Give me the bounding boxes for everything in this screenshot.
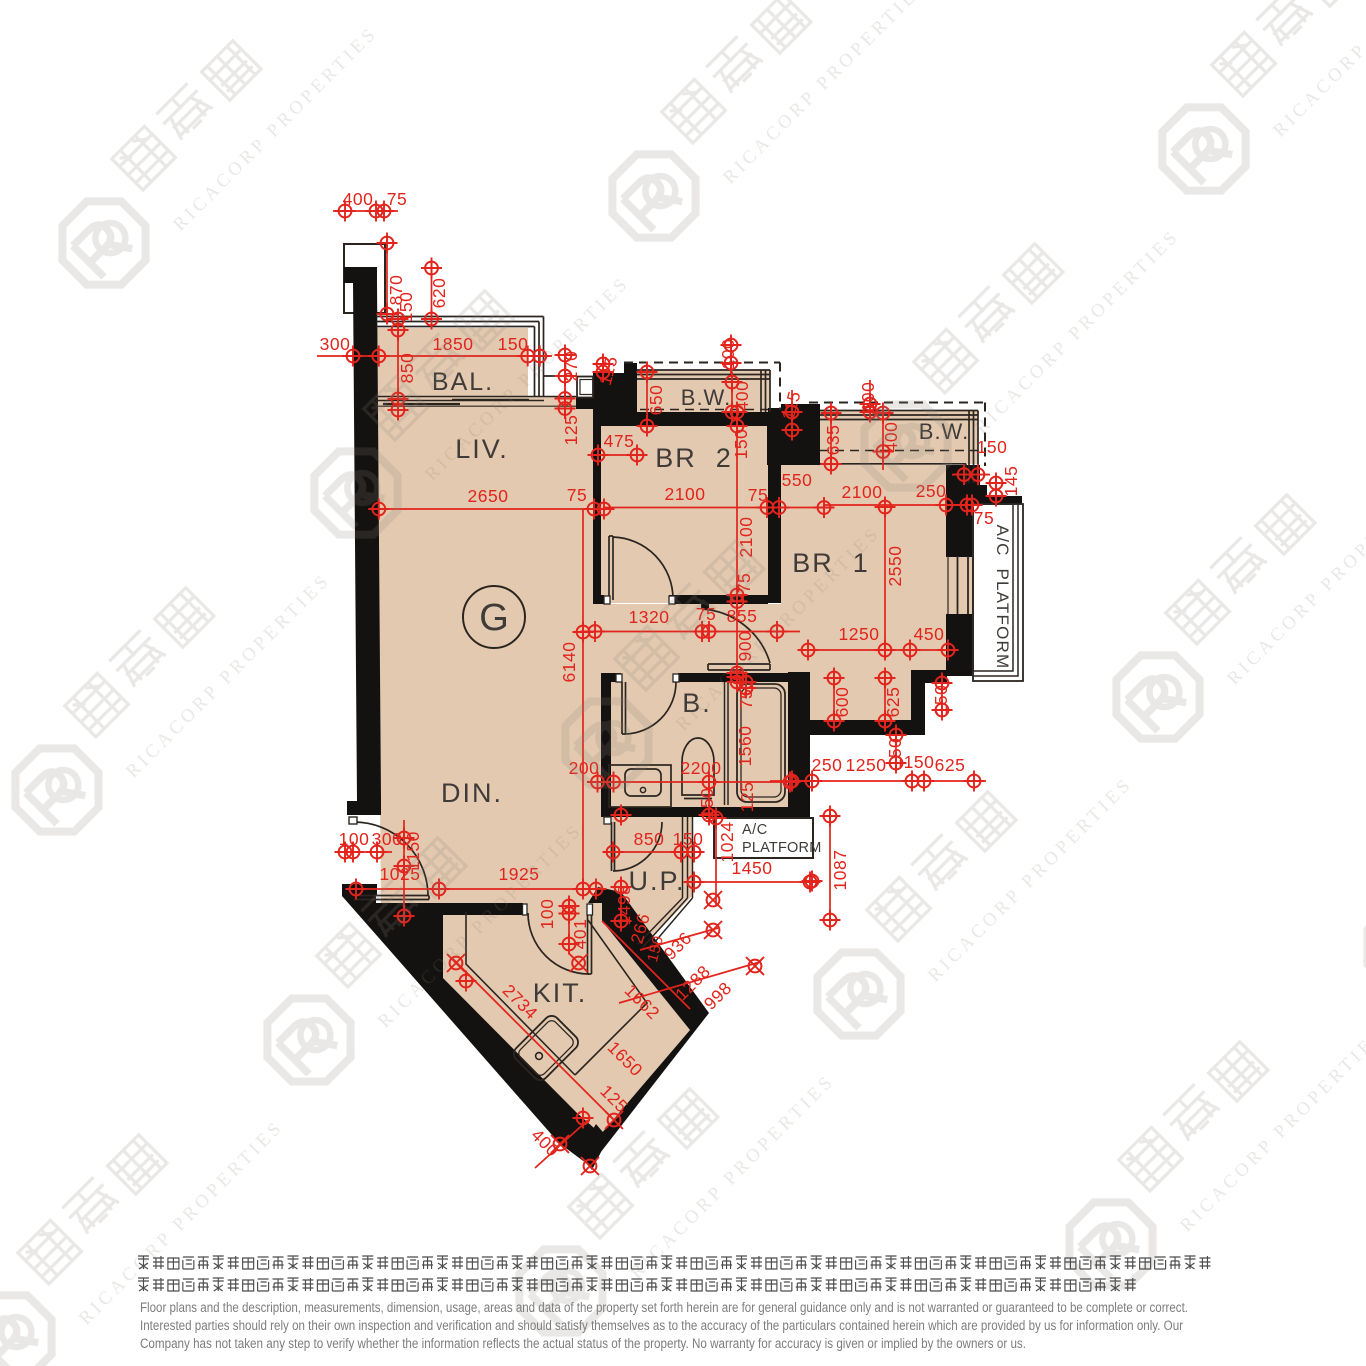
- svg-text:1250: 1250: [846, 755, 887, 775]
- svg-text:2100: 2100: [842, 482, 883, 502]
- svg-text:450: 450: [914, 624, 945, 644]
- svg-text:400: 400: [343, 189, 374, 209]
- svg-text:1450: 1450: [732, 858, 773, 878]
- svg-text:1087: 1087: [830, 850, 850, 891]
- svg-text:150: 150: [885, 738, 905, 769]
- svg-text:BR 2: BR 2: [655, 443, 733, 473]
- svg-text:2650: 2650: [468, 486, 509, 506]
- svg-text:250: 250: [812, 755, 843, 775]
- svg-text:Company has not taken any step: Company has not taken any step to verify…: [140, 1336, 1026, 1351]
- svg-text:6140: 6140: [559, 642, 579, 683]
- svg-text:2550: 2550: [885, 546, 905, 587]
- svg-text:A/C PLATFORM: A/C PLATFORM: [993, 525, 1012, 670]
- svg-text:150: 150: [673, 829, 704, 849]
- svg-text:100: 100: [537, 899, 557, 930]
- svg-text:100: 100: [858, 382, 878, 413]
- svg-text:855: 855: [727, 606, 758, 626]
- svg-text:150: 150: [931, 685, 951, 716]
- svg-text:625: 625: [935, 755, 966, 775]
- svg-text:401: 401: [570, 919, 590, 950]
- svg-text:635: 635: [823, 425, 843, 456]
- svg-text:100: 100: [718, 339, 738, 370]
- svg-text:75: 75: [974, 508, 994, 528]
- svg-text:550: 550: [782, 470, 813, 490]
- svg-text:150: 150: [396, 292, 416, 323]
- svg-text:1498: 1498: [614, 885, 634, 926]
- svg-text:75: 75: [748, 485, 768, 505]
- svg-text:145: 145: [1001, 466, 1021, 497]
- svg-text:Interested parties should rely: Interested parties should rely on their …: [140, 1318, 1183, 1333]
- svg-text:300: 300: [320, 334, 351, 354]
- svg-text:125: 125: [561, 415, 581, 446]
- svg-text:475: 475: [604, 431, 635, 451]
- svg-text:75: 75: [567, 485, 587, 505]
- svg-text:PLATFORM: PLATFORM: [742, 840, 821, 856]
- svg-text:75: 75: [736, 689, 756, 709]
- svg-text:DIN.: DIN.: [441, 778, 503, 808]
- svg-text:A/C: A/C: [742, 822, 768, 838]
- svg-text:650: 650: [646, 385, 666, 416]
- svg-text:600: 600: [832, 687, 852, 718]
- svg-text:150: 150: [731, 429, 751, 460]
- svg-text:KIT.: KIT.: [533, 978, 588, 1008]
- svg-text:B.W.: B.W.: [681, 385, 731, 410]
- svg-text:150: 150: [977, 437, 1008, 457]
- svg-text:1250: 1250: [839, 624, 880, 644]
- svg-text:850: 850: [634, 829, 665, 849]
- svg-text:2100: 2100: [665, 484, 706, 504]
- svg-text:U.P.: U.P.: [628, 866, 685, 896]
- svg-text:100: 100: [339, 829, 370, 849]
- svg-text:2200: 2200: [681, 758, 722, 778]
- svg-text:150: 150: [904, 752, 935, 772]
- svg-text:G: G: [479, 597, 509, 639]
- svg-text:1560: 1560: [735, 726, 755, 767]
- svg-text:150: 150: [697, 788, 717, 819]
- svg-text:125: 125: [737, 782, 757, 813]
- svg-text:150: 150: [498, 334, 529, 354]
- svg-text:625: 625: [883, 687, 903, 718]
- svg-text:1024: 1024: [717, 822, 737, 863]
- svg-text:Floor plans and the descriptio: Floor plans and the description, measure…: [140, 1300, 1188, 1315]
- svg-text:75: 75: [387, 189, 407, 209]
